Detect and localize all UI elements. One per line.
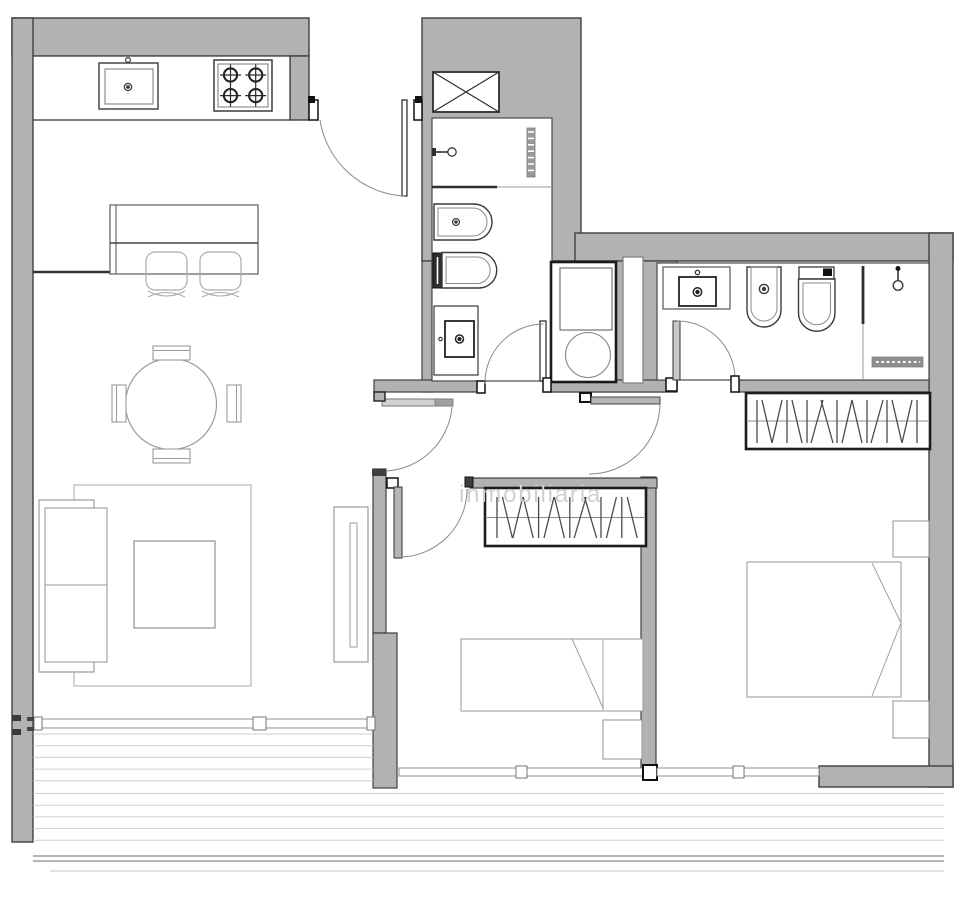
svg-text:inmobiliaria: inmobiliaria xyxy=(459,481,602,508)
